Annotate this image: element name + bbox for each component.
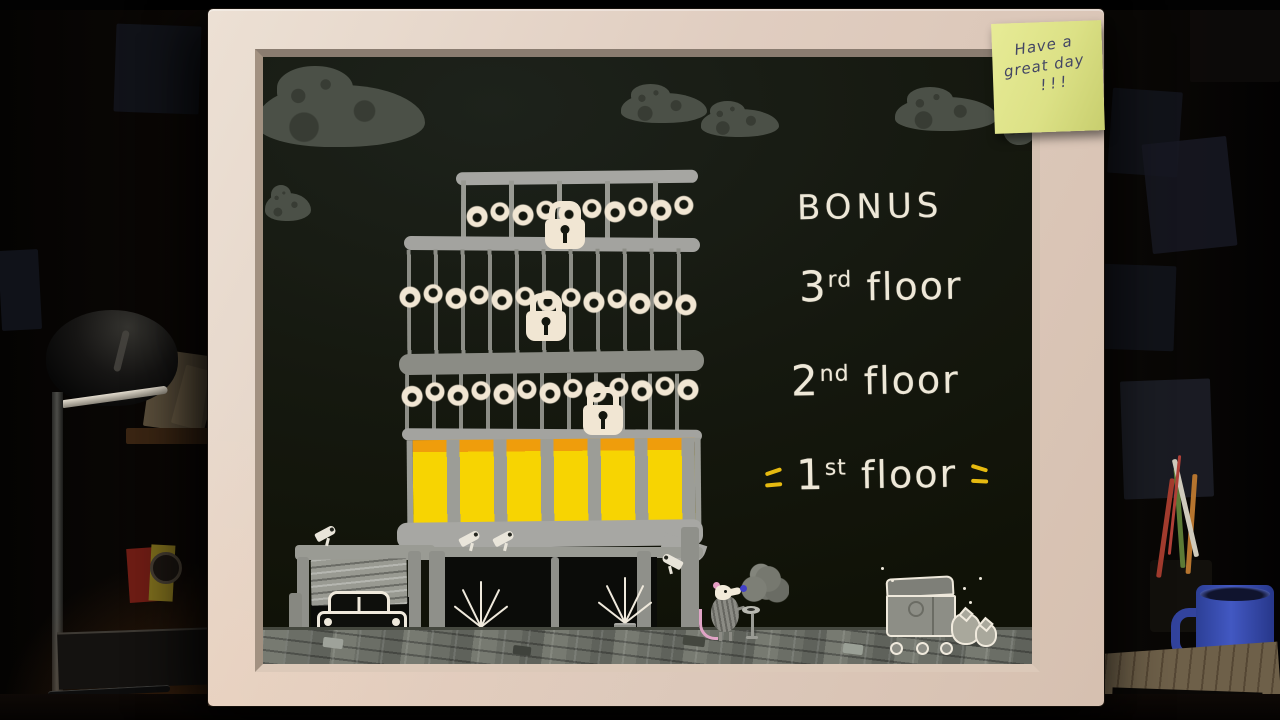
bonus-label: BONUS bbox=[797, 186, 944, 229]
rat-eye bbox=[724, 590, 727, 593]
sticky-note: Have a great day !!! bbox=[991, 20, 1105, 134]
selection-dashes-left bbox=[765, 470, 782, 487]
padlock-shackle bbox=[530, 293, 562, 313]
room-left-wall bbox=[0, 0, 212, 720]
dumpster-icon bbox=[886, 577, 956, 647]
party-horn bbox=[740, 585, 747, 592]
plant-fronds bbox=[463, 575, 499, 627]
trash-bag-icon bbox=[975, 623, 997, 647]
sidewalk-tile bbox=[682, 635, 705, 648]
floor-slab bbox=[399, 350, 704, 375]
security-camera-icon bbox=[315, 529, 343, 549]
camera-mount bbox=[469, 543, 474, 551]
ashtray-pole bbox=[751, 614, 754, 636]
dumpster-wheel bbox=[890, 642, 903, 655]
cloud-icon bbox=[701, 109, 779, 137]
fly-dot bbox=[881, 567, 884, 570]
selection-dashes-right bbox=[971, 466, 988, 483]
first-floor-lit-windows bbox=[407, 438, 702, 533]
menu-item-1st-floor[interactable]: 1st floor bbox=[765, 447, 989, 500]
floor-ordinal: nd bbox=[819, 361, 849, 387]
floor-number: 1 bbox=[796, 450, 826, 499]
ashtray-base bbox=[746, 636, 758, 639]
menu-item-3rd-floor[interactable]: 3rd floor bbox=[799, 260, 963, 312]
desk-clock bbox=[150, 552, 182, 584]
fly-dot bbox=[969, 601, 972, 604]
picture-frame: BONUS 3rd floor 2nd floor 1st floor bbox=[207, 8, 1105, 707]
sidewalk-tile bbox=[842, 643, 863, 655]
floor-number: 3 bbox=[799, 262, 829, 311]
cloud-icon bbox=[621, 93, 707, 123]
ashtray-top bbox=[742, 606, 760, 614]
game-screen: BONUS 3rd floor 2nd floor 1st floor bbox=[0, 0, 1280, 720]
floor-word: floor bbox=[863, 358, 960, 404]
padlock-body bbox=[545, 219, 585, 249]
padlock-body bbox=[583, 405, 623, 435]
dumpster-wheel bbox=[916, 642, 929, 655]
floor-ordinal: st bbox=[825, 456, 848, 481]
cloud-icon bbox=[257, 85, 425, 147]
room-right-wall bbox=[1100, 0, 1280, 720]
frame-opening: BONUS 3rd floor 2nd floor 1st floor bbox=[255, 49, 1040, 672]
padlock-shackle bbox=[587, 387, 619, 407]
cloud-icon bbox=[265, 193, 311, 221]
notebook bbox=[57, 627, 211, 689]
awning-slab bbox=[397, 519, 703, 549]
floor-number: 2 bbox=[791, 356, 821, 405]
padlock-icon bbox=[583, 387, 623, 435]
paper-stack bbox=[1190, 0, 1280, 82]
pinned-paper bbox=[113, 24, 201, 115]
menu-item-2nd-floor[interactable]: 2nd floor bbox=[791, 354, 961, 406]
rat-leg bbox=[729, 632, 732, 641]
padlock-icon bbox=[545, 201, 585, 249]
pinned-paper bbox=[1099, 264, 1177, 352]
padlock-shackle bbox=[549, 201, 581, 221]
cloud-icon bbox=[895, 97, 997, 131]
padlock-body bbox=[526, 311, 566, 341]
fly-dot bbox=[963, 587, 966, 590]
pinned-paper bbox=[1141, 136, 1237, 254]
security-camera-icon bbox=[459, 534, 487, 554]
floor-word: floor bbox=[861, 452, 958, 498]
dumpster-wheel bbox=[940, 642, 953, 655]
padlock-icon bbox=[526, 293, 566, 341]
security-camera-icon bbox=[655, 557, 683, 577]
rat-leg bbox=[719, 632, 722, 641]
rat-character bbox=[705, 579, 747, 643]
floor-ordinal: rd bbox=[827, 267, 852, 292]
sticky-note-text: Have a great day !!! bbox=[987, 14, 1107, 103]
menu-item-bonus[interactable]: BONUS bbox=[797, 186, 944, 229]
chalkboard: BONUS 3rd floor 2nd floor 1st floor bbox=[263, 57, 1032, 664]
sidewalk-tile bbox=[322, 637, 343, 649]
camera-mount bbox=[503, 543, 508, 551]
pinned-paper bbox=[1120, 378, 1214, 499]
security-camera-icon bbox=[493, 534, 521, 554]
dumpster-body bbox=[886, 595, 956, 637]
camera-mount bbox=[325, 538, 330, 546]
fly-dot bbox=[979, 577, 982, 580]
shelf bbox=[126, 428, 212, 444]
plant-fronds bbox=[607, 571, 643, 623]
floor-word: floor bbox=[866, 264, 963, 310]
fly-dot bbox=[891, 579, 894, 582]
pinned-paper bbox=[0, 249, 42, 331]
sidewalk-tile bbox=[513, 645, 532, 656]
ashtray-stand-icon bbox=[742, 606, 762, 642]
camera-mount bbox=[668, 566, 673, 574]
